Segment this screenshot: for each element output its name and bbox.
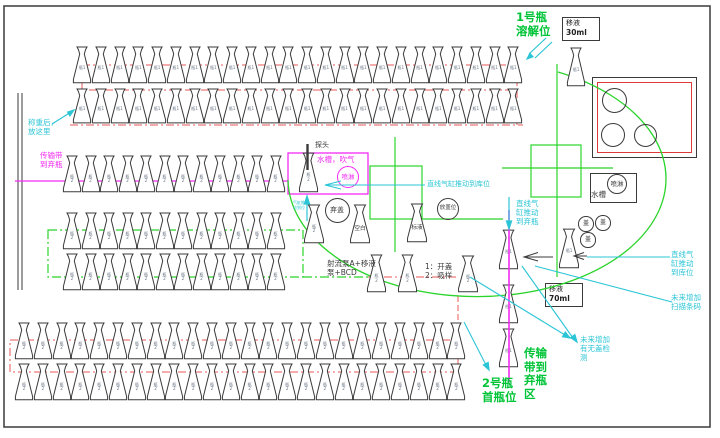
flask-label: 瓶1 xyxy=(353,66,373,70)
flask-label: 瓶 2 xyxy=(296,383,316,392)
flask-probe-station: 瓶 2 xyxy=(298,152,319,193)
flask-label: 瓶1 xyxy=(278,107,298,111)
flask-outfeed-3: 瓶1 xyxy=(498,328,519,368)
flask-label: 瓶 2 xyxy=(371,383,391,392)
row-6-flask-22: 瓶 2 xyxy=(409,322,429,360)
flask-label: 瓶 2 xyxy=(146,383,166,392)
flask-label: 瓶1 xyxy=(185,107,205,111)
flask-label: 瓶1 xyxy=(297,66,317,70)
note-future-barcode: 未来增加 扫描条码 xyxy=(671,293,701,311)
flask-label: 瓶 2 xyxy=(298,173,319,182)
row-4-flask-5: 瓶 2 xyxy=(136,212,156,250)
row-2-flask-22: 瓶1 xyxy=(466,88,486,124)
row-6-flask-11: 瓶 2 xyxy=(202,322,222,360)
flask-label: 瓶 2 xyxy=(127,383,147,392)
row-6-flask-15: 瓶 2 xyxy=(277,322,297,360)
row-6-flask-7: 瓶 2 xyxy=(127,322,147,360)
row-2-flask-6: 瓶1 xyxy=(166,88,186,124)
row-3-flask-11: 瓶 2 xyxy=(247,155,267,193)
flask-label: 瓶 2 xyxy=(390,383,410,392)
row-3-flask-12: 瓶 2 xyxy=(266,155,286,193)
dissolve-arrow-l1 xyxy=(529,38,546,54)
row-1-flask-6: 瓶1 xyxy=(166,46,186,84)
flask-label: 瓶 2 xyxy=(277,342,297,351)
note-cyl-in-place-tiny: 气缸推 动到位 xyxy=(293,201,305,211)
flask-open-aspirate: 瓶 2 xyxy=(457,255,479,293)
spray-circle-magenta: 喷淋 xyxy=(337,166,359,188)
flask-transfer: 瓶1 xyxy=(558,228,580,269)
row-7-flask-1: 瓶 2 xyxy=(14,363,34,401)
flask-label: 瓶 2 xyxy=(173,273,193,282)
flask-label: 瓶1 xyxy=(241,107,261,111)
row-6-flask-18: 瓶 2 xyxy=(334,322,354,360)
row-6-flask-4: 瓶 2 xyxy=(70,322,90,360)
flask-label: 瓶 2 xyxy=(136,273,156,282)
row-2-flask-11: 瓶1 xyxy=(260,88,280,124)
row-1-flask-17: 瓶1 xyxy=(372,46,392,84)
row-4-flask-6: 瓶 2 xyxy=(155,212,175,250)
row-2-flask-23: 瓶1 xyxy=(485,88,505,124)
note-open-aspirate: 1：开盖 2：吸样 xyxy=(425,262,452,280)
note-cyl-push-store-right: 直线气 缸推动 到库位 xyxy=(671,250,694,277)
row-2-flask-21: 瓶1 xyxy=(447,88,467,124)
flask-label: 瓶 2 xyxy=(89,383,109,392)
row-7-flask-7: 瓶 2 xyxy=(127,363,147,401)
row-1-flask-23: 瓶1 xyxy=(485,46,505,84)
row-6-flask-1: 瓶 2 xyxy=(14,322,34,360)
flask-shape xyxy=(406,203,428,243)
flask-label: 瓶 2 xyxy=(409,342,429,351)
flask-label: 瓶 2 xyxy=(146,342,166,351)
flask-label: 瓶 2 xyxy=(296,342,316,351)
flask-label: 瓶 2 xyxy=(99,232,119,241)
row-1-flask-4: 瓶1 xyxy=(128,46,148,84)
flask-label: 瓶1 xyxy=(558,249,580,253)
up-arrow-head xyxy=(304,196,309,204)
flask-label: 瓶 2 xyxy=(397,274,418,283)
flask-label: 瓶 2 xyxy=(202,383,222,392)
row-7-flask-12: 瓶 2 xyxy=(221,363,241,401)
flask-label: 瓶 2 xyxy=(70,342,90,351)
note-weigh-here: 称重后， 放这里 xyxy=(28,118,58,136)
row-5-flask-9: 瓶 2 xyxy=(210,253,230,291)
flask-label: 瓶 2 xyxy=(240,383,260,392)
row-7-flask-13: 瓶 2 xyxy=(240,363,260,401)
flask-label: 瓶1 xyxy=(222,66,242,70)
row-7-flask-3: 瓶 2 xyxy=(52,363,72,401)
row-1-flask-16: 瓶1 xyxy=(353,46,373,84)
pipette-70ml-box: 移液70ml xyxy=(545,283,583,307)
note-future-cap-detect: 未来增加 有无盖检 测 xyxy=(580,335,610,362)
row-4-flask-11: 瓶 2 xyxy=(247,212,267,250)
note-bottle2-first: 2号瓶 首瓶位 xyxy=(482,377,517,404)
flask-label: 瓶 2 xyxy=(118,175,138,184)
row-7-flask-11: 瓶 2 xyxy=(202,363,222,401)
flask-label: 瓶 2 xyxy=(247,232,267,241)
row-4-flask-9: 瓶 2 xyxy=(210,212,230,250)
flask-label: 瓶 2 xyxy=(164,342,184,351)
flask-label: 瓶1 xyxy=(503,66,523,70)
flask-label: 瓶1 xyxy=(410,107,430,111)
row-2-flask-17: 瓶1 xyxy=(372,88,392,124)
flask-label: 瓶1 xyxy=(278,66,298,70)
row-1-flask-11: 瓶1 xyxy=(260,46,280,84)
flask-label: 瓶1 xyxy=(185,66,205,70)
dissolve-arrow-l2 xyxy=(535,42,552,58)
note-cyl-push-discard: 直线气 缸推动 到弃瓶 xyxy=(516,199,539,226)
row-1-flask-13: 瓶1 xyxy=(297,46,317,84)
flask-shape xyxy=(349,204,371,244)
dissolve-arrow-head xyxy=(527,53,533,59)
flask-label: 瓶 2 xyxy=(446,383,466,392)
row-6-flask-12: 瓶 2 xyxy=(221,322,241,360)
row-7-flask-5: 瓶 2 xyxy=(89,363,109,401)
pipette-30ml-box-text: 移液30ml xyxy=(566,19,587,38)
flask-label: 瓶 2 xyxy=(371,342,391,351)
flask-label: 瓶 2 xyxy=(81,175,101,184)
flask-label: 瓶 2 xyxy=(33,342,53,351)
flask-outfeed-2: 瓶1 xyxy=(498,284,519,324)
flask-label: 瓶1 xyxy=(110,107,130,111)
row-6-flask-16: 瓶 2 xyxy=(296,322,316,360)
row-2-flask-19: 瓶1 xyxy=(410,88,430,124)
flask-label: 瓶 2 xyxy=(315,383,335,392)
row-5-flask-5: 瓶 2 xyxy=(136,253,156,291)
row-5-flask-1: 瓶 2 xyxy=(62,253,82,291)
row-7-flask-10: 瓶 2 xyxy=(183,363,203,401)
row-7-flask-21: 瓶 2 xyxy=(390,363,410,401)
flask-label: 瓶 2 xyxy=(108,342,128,351)
row-7-flask-23: 瓶 2 xyxy=(428,363,448,401)
flask-label: 瓶1 xyxy=(485,107,505,111)
flask-label: 瓶 2 xyxy=(127,342,147,351)
row-5-flask-12: 瓶 2 xyxy=(266,253,286,291)
cap-circle-2: 盖 xyxy=(595,215,610,230)
flask-label: 瓶1 xyxy=(503,107,523,111)
flask-label: 瓶 2 xyxy=(173,175,193,184)
flask-label: 瓶 2 xyxy=(155,175,175,184)
flask-label: 瓶 2 xyxy=(229,175,249,184)
flask-label: 瓶1 xyxy=(447,107,467,111)
flask-label: 瓶 2 xyxy=(457,275,479,284)
flask-label: 瓶 2 xyxy=(258,342,278,351)
row-6-flask-19: 瓶 2 xyxy=(352,322,372,360)
flask-label: 瓶 2 xyxy=(62,175,82,184)
flask-label: 瓶1 xyxy=(372,107,392,111)
flask-label: 瓶1 xyxy=(391,66,411,70)
flask-label: 空白 xyxy=(349,227,371,233)
row-7-flask-6: 瓶 2 xyxy=(108,363,128,401)
note-bottle1-dissolve: 1号瓶 溶解位 xyxy=(516,11,551,38)
leader-first-bottle-h xyxy=(483,362,489,370)
flask-label: 瓶1 xyxy=(391,107,411,111)
row-1-flask-12: 瓶1 xyxy=(278,46,298,84)
flask-label: 瓶1 xyxy=(428,107,448,111)
note-probe: 探头 xyxy=(315,141,329,150)
row-1-flask-15: 瓶1 xyxy=(335,46,355,84)
flask-label: 瓶 2 xyxy=(210,175,230,184)
flask-label: 瓶 2 xyxy=(155,273,175,282)
flask-label: 瓶1 xyxy=(372,66,392,70)
row-2-flask-1: 瓶1 xyxy=(72,88,92,124)
row-7-flask-17: 瓶 2 xyxy=(315,363,335,401)
flask-label: 标液 xyxy=(406,226,428,232)
flask-carousel-2: 瓶 2 xyxy=(397,254,418,293)
row-3-flask-2: 瓶 2 xyxy=(81,155,101,193)
flask-label: 瓶 2 xyxy=(210,273,230,282)
flask-label: 瓶1 xyxy=(447,66,467,70)
flask-label: 瓶 2 xyxy=(14,342,34,351)
row-1-flask-18: 瓶1 xyxy=(391,46,411,84)
flask-label: 瓶1 xyxy=(316,66,336,70)
flask-label: 瓶1 xyxy=(498,305,519,309)
row-6-flask-24: 瓶 2 xyxy=(446,322,466,360)
flask-label: 瓶1 xyxy=(110,66,130,70)
station-circle-2 xyxy=(601,123,625,147)
row-5-flask-8: 瓶 2 xyxy=(192,253,212,291)
flask-label: 瓶 2 xyxy=(62,232,82,241)
row-7-flask-19: 瓶 2 xyxy=(352,363,372,401)
flask-label: 瓶 2 xyxy=(409,383,429,392)
flask-label: 瓶 2 xyxy=(118,232,138,241)
row-6-flask-21: 瓶 2 xyxy=(390,322,410,360)
row-5-flask-7: 瓶 2 xyxy=(173,253,193,291)
flask-label: 瓶 2 xyxy=(99,175,119,184)
row-2-flask-16: 瓶1 xyxy=(353,88,373,124)
flask-label: 瓶1 xyxy=(498,349,519,353)
row-1-flask-3: 瓶1 xyxy=(110,46,130,84)
row-2-flask-8: 瓶1 xyxy=(203,88,223,124)
flask-label: 瓶1 xyxy=(147,66,167,70)
flask-label: 瓶 2 xyxy=(247,273,267,282)
flask-standard: 标液 xyxy=(406,203,428,243)
flask-label: 瓶 2 xyxy=(136,232,156,241)
flask-label: 瓶1 xyxy=(566,68,586,72)
flask-label: 瓶1 xyxy=(428,66,448,70)
flask-label: 瓶 2 xyxy=(277,383,297,392)
row-6-flask-5: 瓶 2 xyxy=(89,322,109,360)
flask-label: 瓶 2 xyxy=(192,175,212,184)
row-5-flask-2: 瓶 2 xyxy=(81,253,101,291)
black-arrow1-head xyxy=(524,253,538,262)
pipette-70ml-box-text: 移液70ml xyxy=(549,285,570,304)
flask-dissolve: 瓶1 xyxy=(566,47,586,87)
flask-label: 瓶1 xyxy=(353,107,373,111)
row-5-flask-6: 瓶 2 xyxy=(155,253,175,291)
row-1-flask-19: 瓶1 xyxy=(410,46,430,84)
flask-label: 瓶 2 xyxy=(81,232,101,241)
flask-label: 瓶1 xyxy=(203,66,223,70)
row-3-flask-3: 瓶 2 xyxy=(99,155,119,193)
row-4-flask-8: 瓶 2 xyxy=(192,212,212,250)
row-6-flask-6: 瓶 2 xyxy=(108,322,128,360)
flask-label: 瓶1 xyxy=(147,107,167,111)
row-2-flask-24: 瓶1 xyxy=(503,88,523,124)
flask-label: 瓶1 xyxy=(260,107,280,111)
row-4-flask-4: 瓶 2 xyxy=(118,212,138,250)
row-7-flask-14: 瓶 2 xyxy=(258,363,278,401)
flask-label: 瓶1 xyxy=(241,66,261,70)
flask-label: 瓶1 xyxy=(335,107,355,111)
flask-label: 瓶1 xyxy=(410,66,430,70)
down-arrow-head xyxy=(506,221,511,229)
flask-label: 瓶 2 xyxy=(155,232,175,241)
flask-label: 瓶 2 xyxy=(266,175,286,184)
process-diagram-canvas: 移液30ml移液70ml瓶1瓶1瓶1瓶1瓶1瓶1瓶1瓶1瓶1瓶1瓶1瓶1瓶1瓶1… xyxy=(0,0,720,438)
flask-label: 瓶1 xyxy=(485,66,505,70)
row-4-flask-12: 瓶 2 xyxy=(266,212,286,250)
flask-label: 瓶1 xyxy=(91,66,111,70)
row-5-flask-10: 瓶 2 xyxy=(229,253,249,291)
note-watertank-blow: 水槽，吹气 xyxy=(317,155,355,164)
flask-label: 瓶 2 xyxy=(247,175,267,184)
row-3-flask-4: 瓶 2 xyxy=(118,155,138,193)
row-1-flask-2: 瓶1 xyxy=(91,46,111,84)
note-belt-discard-area: 传输 带到 弃瓶 区 xyxy=(524,347,547,401)
row-6-flask-17: 瓶 2 xyxy=(315,322,335,360)
row-1-flask-5: 瓶1 xyxy=(147,46,167,84)
row-4-flask-2: 瓶 2 xyxy=(81,212,101,250)
flask-label: 瓶1 xyxy=(466,107,486,111)
row-4-flask-10: 瓶 2 xyxy=(229,212,249,250)
leader-capdetect-2h xyxy=(563,332,571,338)
row-2-flask-13: 瓶1 xyxy=(297,88,317,124)
flask-label: 瓶 2 xyxy=(240,342,260,351)
row-5-flask-4: 瓶 2 xyxy=(118,253,138,291)
flask-label: 瓶1 xyxy=(335,66,355,70)
row-1-flask-24: 瓶1 xyxy=(503,46,523,84)
flask-label: 瓶 2 xyxy=(33,383,53,392)
row-2-flask-15: 瓶1 xyxy=(335,88,355,124)
flask-label: 瓶 2 xyxy=(428,342,448,351)
row-2-flask-9: 瓶1 xyxy=(222,88,242,124)
leader-capdetect-1h xyxy=(571,335,577,342)
row-3-flask-6: 瓶 2 xyxy=(155,155,175,193)
note-cyl-push-store-top: 直线气缸推动到库位 xyxy=(427,180,490,189)
row-7-flask-2: 瓶 2 xyxy=(33,363,53,401)
row-1-flask-21: 瓶1 xyxy=(447,46,467,84)
row-6-flask-20: 瓶 2 xyxy=(371,322,391,360)
row-2-flask-7: 瓶1 xyxy=(185,88,205,124)
flask-label: 瓶 2 xyxy=(70,383,90,392)
station-circle-1 xyxy=(602,88,627,113)
row-4-flask-1: 瓶 2 xyxy=(62,212,82,250)
row-2-flask-20: 瓶1 xyxy=(428,88,448,124)
row-3-flask-8: 瓶 2 xyxy=(192,155,212,193)
pipette-30ml-box: 移液30ml xyxy=(562,17,600,41)
row-6-flask-3: 瓶 2 xyxy=(52,322,72,360)
note-jet-pump: 射流泵A+移液 泵+BCD xyxy=(327,259,376,277)
row-1-flask-8: 瓶1 xyxy=(203,46,223,84)
flask-label: 瓶 2 xyxy=(352,383,372,392)
flask-label: 瓶 2 xyxy=(183,383,203,392)
leader-first-bottle xyxy=(464,322,486,365)
row-7-flask-24: 瓶 2 xyxy=(446,363,466,401)
row-6-flask-2: 瓶 2 xyxy=(33,322,53,360)
flask-label: 瓶 2 xyxy=(258,383,278,392)
row-2-flask-12: 瓶1 xyxy=(278,88,298,124)
flask-label: 瓶 2 xyxy=(221,342,241,351)
flask-label: 瓶 2 xyxy=(210,232,230,241)
row-2-flask-3: 瓶1 xyxy=(110,88,130,124)
flask-label: 瓶 2 xyxy=(173,232,193,241)
row-4-flask-7: 瓶 2 xyxy=(173,212,193,250)
flask-label: 瓶1 xyxy=(222,107,242,111)
flask-label: 瓶1 xyxy=(91,107,111,111)
flask-label: 瓶 2 xyxy=(352,342,372,351)
flask-blank: 空白 xyxy=(349,204,371,244)
row-1-flask-14: 瓶1 xyxy=(316,46,336,84)
flask-label: 瓶 2 xyxy=(14,383,34,392)
row-6-flask-8: 瓶 2 xyxy=(146,322,166,360)
row-7-flask-18: 瓶 2 xyxy=(334,363,354,401)
row-1-flask-9: 瓶1 xyxy=(222,46,242,84)
flask-label: 瓶1 xyxy=(166,66,186,70)
row-6-flask-14: 瓶 2 xyxy=(258,322,278,360)
spray-circle-black: 喷淋 xyxy=(607,174,627,194)
row-1-flask-7: 瓶1 xyxy=(185,46,205,84)
flask-label: 瓶 2 xyxy=(136,175,156,184)
flask-label: 瓶 2 xyxy=(81,273,101,282)
flask-label: 瓶 2 xyxy=(202,342,222,351)
flask-label: 瓶 2 xyxy=(192,273,212,282)
row-1-flask-22: 瓶1 xyxy=(466,46,486,84)
flask-label: 瓶1 xyxy=(166,107,186,111)
row-7-flask-20: 瓶 2 xyxy=(371,363,391,401)
flask-label: 瓶 2 xyxy=(164,383,184,392)
row-7-flask-16: 瓶 2 xyxy=(296,363,316,401)
flask-label: 瓶 2 xyxy=(99,273,119,282)
row-3-flask-9: 瓶 2 xyxy=(210,155,230,193)
place-cap-circle: 放盖位 xyxy=(437,198,459,220)
row-2-flask-5: 瓶1 xyxy=(147,88,167,124)
row-2-flask-18: 瓶1 xyxy=(391,88,411,124)
flask-label: 瓶1 xyxy=(260,66,280,70)
row-6-flask-23: 瓶 2 xyxy=(428,322,448,360)
row-6-flask-13: 瓶 2 xyxy=(240,322,260,360)
row-6-flask-10: 瓶 2 xyxy=(183,322,203,360)
flask-wash-wait: 瓶 2 xyxy=(303,204,325,244)
flask-label: 瓶 2 xyxy=(52,383,72,392)
row-7-flask-9: 瓶 2 xyxy=(164,363,184,401)
flask-label: 瓶 2 xyxy=(266,232,286,241)
flask-label: 瓶 2 xyxy=(229,232,249,241)
flask-label: 瓶 2 xyxy=(52,342,72,351)
flask-label: 瓶 2 xyxy=(118,273,138,282)
flask-label: 瓶 2 xyxy=(390,342,410,351)
row-1-flask-10: 瓶1 xyxy=(241,46,261,84)
flask-label: 瓶 2 xyxy=(266,273,286,282)
row-3-flask-1: 瓶 2 xyxy=(62,155,82,193)
flask-label: 瓶 2 xyxy=(428,383,448,392)
green-square-right xyxy=(531,145,581,197)
note-belt-discard-left: 传输带 到弃瓶 xyxy=(40,151,63,169)
cap-circle-3: 盖 xyxy=(580,232,595,247)
row-3-flask-10: 瓶 2 xyxy=(229,155,249,193)
row-2-flask-2: 瓶1 xyxy=(91,88,111,124)
flask-label: 瓶 2 xyxy=(108,383,128,392)
flask-label: 瓶 2 xyxy=(446,342,466,351)
row-2-flask-14: 瓶1 xyxy=(316,88,336,124)
flask-label: 瓶1 xyxy=(72,66,92,70)
note-water-tank: 水槽 xyxy=(591,190,606,199)
flask-label: 瓶1 xyxy=(72,107,92,111)
flask-label: 瓶1 xyxy=(128,66,148,70)
row-6-flask-9: 瓶 2 xyxy=(164,322,184,360)
flask-label: 瓶 2 xyxy=(89,342,109,351)
flask-label: 瓶1 xyxy=(203,107,223,111)
discard-cap-circle: 弃盖 xyxy=(325,198,350,223)
